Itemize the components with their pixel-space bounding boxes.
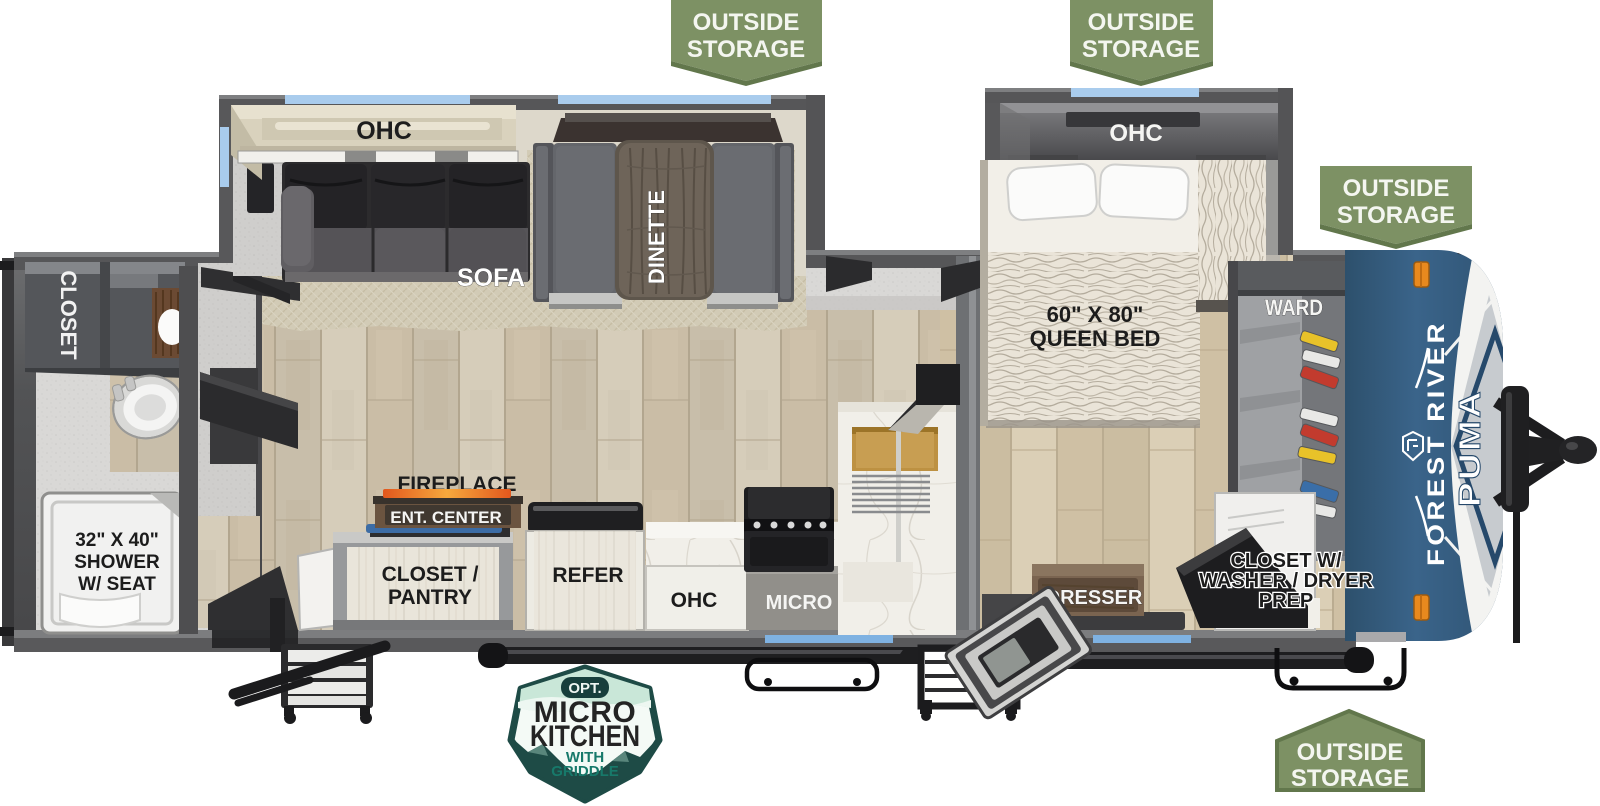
svg-text:OHC: OHC bbox=[671, 589, 718, 612]
svg-text:PANTRY: PANTRY bbox=[388, 586, 472, 609]
svg-text:SHOWER: SHOWER bbox=[74, 552, 160, 573]
svg-text:STORAGE: STORAGE bbox=[1291, 765, 1409, 792]
svg-text:60" X 80": 60" X 80" bbox=[1047, 302, 1144, 327]
svg-text:OUTSIDE: OUTSIDE bbox=[1088, 9, 1195, 36]
svg-text:MICRO: MICRO bbox=[766, 592, 833, 614]
svg-text:GRIDDLE: GRIDDLE bbox=[551, 763, 619, 780]
svg-text:QUEEN BED: QUEEN BED bbox=[1030, 326, 1161, 351]
svg-text:CLOSET W/: CLOSET W/ bbox=[1230, 550, 1342, 572]
svg-text:OUTSIDE: OUTSIDE bbox=[1297, 739, 1404, 766]
svg-text:ENT. CENTER: ENT. CENTER bbox=[390, 508, 501, 527]
svg-text:STORAGE: STORAGE bbox=[1337, 202, 1455, 229]
svg-text:W/ SEAT: W/ SEAT bbox=[78, 574, 156, 595]
svg-text:OUTSIDE: OUTSIDE bbox=[693, 9, 800, 36]
svg-text:DINETTE: DINETTE bbox=[644, 190, 669, 284]
svg-text:PREP: PREP bbox=[1259, 590, 1313, 612]
svg-text:CLOSET: CLOSET bbox=[56, 270, 81, 360]
svg-text:CLOSET /: CLOSET / bbox=[382, 563, 479, 586]
svg-text:32" X 40": 32" X 40" bbox=[75, 530, 159, 551]
svg-text:OHC: OHC bbox=[1109, 120, 1162, 147]
svg-text:OUTSIDE: OUTSIDE bbox=[1343, 175, 1450, 202]
svg-text:SOFA: SOFA bbox=[457, 264, 525, 292]
svg-text:OPT.: OPT. bbox=[568, 680, 601, 697]
svg-text:OHC: OHC bbox=[356, 117, 412, 145]
svg-text:STORAGE: STORAGE bbox=[1082, 36, 1200, 63]
svg-text:STORAGE: STORAGE bbox=[687, 36, 805, 63]
svg-text:PUMA: PUMA bbox=[1452, 389, 1487, 507]
svg-text:REFER: REFER bbox=[552, 564, 623, 587]
svg-text:WASHER / DRYER: WASHER / DRYER bbox=[1199, 570, 1373, 592]
svg-text:WARD: WARD bbox=[1265, 295, 1323, 320]
